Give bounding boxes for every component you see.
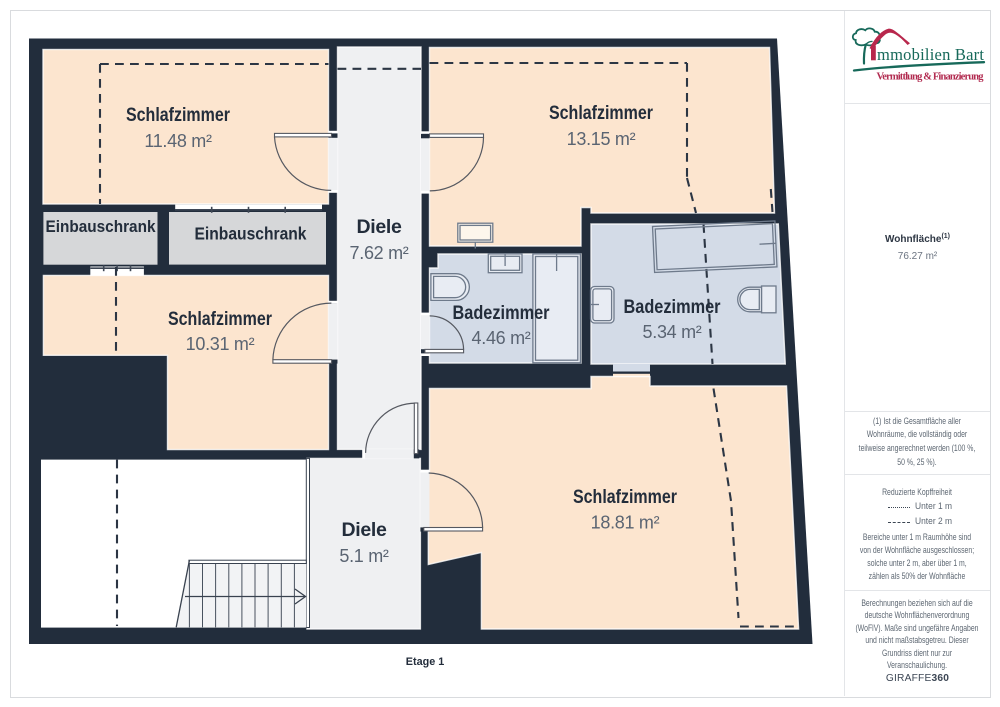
svg-text:Diele: Diele	[356, 216, 402, 238]
svg-text:Badezimmer: Badezimmer	[624, 297, 722, 318]
svg-text:Badezimmer: Badezimmer	[453, 303, 551, 324]
svg-text:Einbauschrank: Einbauschrank	[195, 224, 307, 244]
svg-text:10.31 m²: 10.31 m²	[186, 334, 255, 354]
svg-text:4.46 m²: 4.46 m²	[472, 328, 531, 348]
svg-text:18.81 m²: 18.81 m²	[591, 513, 660, 533]
svg-text:Diele: Diele	[341, 519, 387, 541]
svg-text:Etage 1: Etage 1	[406, 656, 444, 668]
svg-text:Schlafzimmer: Schlafzimmer	[549, 102, 653, 124]
svg-text:13.15 m²: 13.15 m²	[567, 129, 636, 149]
svg-text:5.34 m²: 5.34 m²	[643, 322, 702, 342]
svg-text:Vermittlung & Finanzierung: Vermittlung & Finanzierung	[877, 72, 985, 83]
svg-text:11.48 m²: 11.48 m²	[144, 131, 212, 151]
svg-text:7.62 m²: 7.62 m²	[350, 243, 409, 263]
svg-text:Schlafzimmer: Schlafzimmer	[573, 486, 677, 508]
svg-text:Schlafzimmer: Schlafzimmer	[168, 308, 272, 330]
svg-text:mmobilien Bart: mmobilien Bart	[877, 45, 984, 64]
svg-text:5.1 m²: 5.1 m²	[339, 546, 389, 566]
svg-text:Einbauschrank: Einbauschrank	[46, 218, 157, 236]
svg-text:Schlafzimmer: Schlafzimmer	[126, 104, 230, 126]
